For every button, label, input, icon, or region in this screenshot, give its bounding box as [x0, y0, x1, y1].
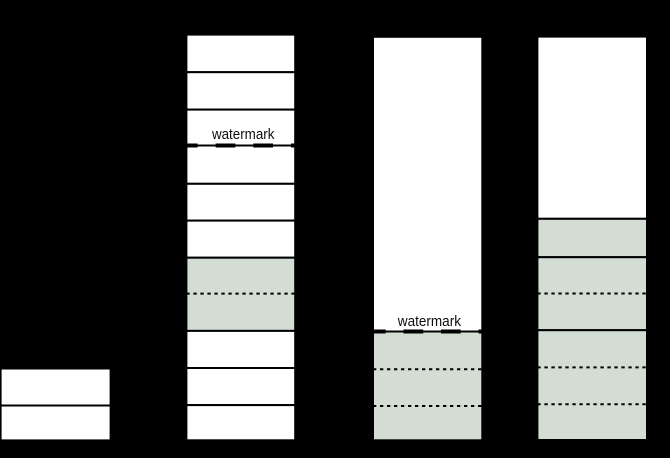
svg-text:watermark: watermark [211, 127, 275, 143]
svg-text:watermark: watermark [397, 314, 462, 330]
